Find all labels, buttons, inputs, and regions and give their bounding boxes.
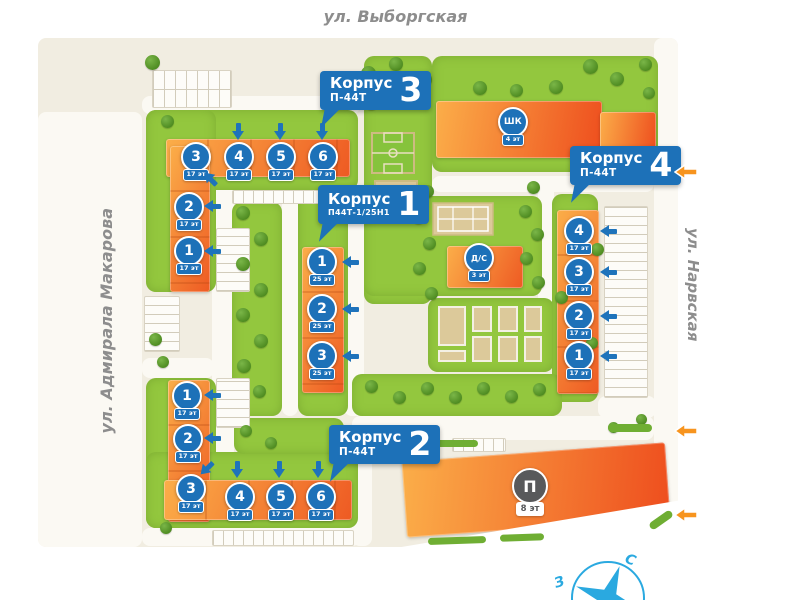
utility-courts [438,304,542,366]
tree [157,356,169,368]
tree [519,205,532,218]
tree [643,87,655,99]
badge-korpus4-4[interactable]: 417 эт [556,216,602,255]
badge-number: 3 [564,257,594,287]
tree [236,206,250,220]
entrance-arrow [204,245,222,257]
badge-number: 4 [224,142,254,172]
badge-floors: 17 эт [566,284,593,296]
badge-floors: 17 эт [310,169,337,181]
callout-korpus-3[interactable]: КорпусП-44Т3 [320,71,431,110]
entrance-arrow [204,389,222,401]
badge-number: 2 [174,192,204,222]
entrance-arrow [231,460,243,478]
parking-area [212,530,354,546]
callout-subtitle: П-44Т [330,92,392,104]
callout-number: 4 [649,150,672,180]
entrance-arrow [342,350,360,362]
badge-floors: 25 эт [309,368,336,380]
callout-title: Корпус [339,429,401,446]
badge-number: 3 [181,142,211,172]
badge-floors: 17 эт [226,169,253,181]
badge-label: Д/С [464,243,494,273]
tree [393,391,406,404]
tree [549,80,563,94]
access-arrow [674,507,698,527]
tree [532,276,545,289]
tree [236,308,250,322]
entrance-arrow [600,310,618,322]
badge-number: 4 [564,216,594,246]
tree [449,391,462,404]
badge-floors: 4 эт [502,134,524,146]
compass-rose: С З [548,546,668,600]
road [142,358,214,378]
callout-title: Корпус [328,191,390,208]
access-arrow [674,164,698,184]
badge-floors: 17 эт [566,328,593,340]
lawn [234,418,344,454]
badge-floors: 8 эт [516,502,545,516]
badge-korpus2-6[interactable]: 617 эт [298,482,344,521]
court-cell [472,306,492,332]
entrance-arrow [342,256,360,268]
tree [254,334,268,348]
tree [237,359,251,373]
entrance-arrow [600,350,618,362]
callout-title: Корпус [580,150,642,167]
tree [639,58,652,71]
badge-number: 5 [266,482,296,512]
tree [423,237,436,250]
road [598,396,656,418]
court-cell [498,336,518,362]
tree [477,382,490,395]
badge-kindergarten[interactable]: Д/С3 эт [456,243,502,282]
badge-number: 5 [266,142,296,172]
parking-area [216,378,250,428]
tree [413,262,426,275]
compass-west-label: З [552,573,566,591]
road [282,192,298,416]
badge-floors: 17 эт [268,169,295,181]
badge-korpus1-3[interactable]: 325 эт [299,341,345,380]
tree [265,437,277,449]
tree [610,72,624,86]
callout-number: 1 [397,189,420,219]
callout-title: Корпус [330,75,392,92]
badge-number: 3 [176,474,206,504]
access-arrow [674,423,698,443]
site-plan: ул. Выборгская ул. Адмирала Макарова ул.… [0,0,800,600]
callout-korpus-4[interactable]: КорпусП-44Т4 [570,146,681,185]
basketball-court [371,132,415,174]
entrance-arrow [204,200,222,212]
tree [421,382,434,395]
building-school-wing[interactable] [600,112,656,150]
parking-grid [152,70,232,108]
tree [161,115,174,128]
tree [160,522,172,534]
badge-number: 6 [308,142,338,172]
tree [531,228,544,241]
badge-korpus2-3[interactable]: 317 эт [168,474,214,513]
badge-number: 1 [172,381,202,411]
badge-floors: 17 эт [268,509,295,521]
tree [533,383,546,396]
badge-label: ШК [498,107,528,137]
tree [149,333,162,346]
callout-number: 2 [408,429,431,459]
badge-number: 2 [173,424,203,454]
badge-floors: 25 эт [309,321,336,333]
tree [425,287,438,300]
court-cell [438,306,466,346]
badge-korpus3-6[interactable]: 617 эт [300,142,346,181]
badge-floors: 17 эт [174,408,201,420]
tree [365,380,378,393]
street-label-left: ул. Адмирала Макарова [97,208,116,433]
tree [236,257,250,271]
tree [254,232,268,246]
badge-floors: 17 эт [227,509,254,521]
badge-floors: 25 эт [309,274,336,286]
tree [583,59,598,74]
court-cell [524,306,542,332]
badge-number: 1 [174,236,204,266]
badge-floors: 17 эт [566,368,593,380]
badge-floors: 17 эт [178,501,205,513]
entrance-arrow [273,460,285,478]
badge-floors: 17 эт [566,243,593,255]
street-label-right: ул. Нарвская [684,228,702,341]
court-cell [472,336,492,362]
tree [240,425,252,437]
badge-floors: 17 эт [308,509,335,521]
entrance-arrow [600,266,618,278]
tennis-court [432,202,494,236]
court-cell [438,350,466,362]
entrance-arrow [274,122,286,140]
tree [253,385,266,398]
tree [505,390,518,403]
street-left-surface [38,112,142,547]
callout-korpus-1[interactable]: КорпусП44Т-1/25Н11 [318,185,429,224]
badge-korpus3-4[interactable]: 417 эт [216,142,262,181]
badge-label: П [512,468,548,504]
badge-korpus4-3[interactable]: 317 эт [556,257,602,296]
entrance-arrow [204,432,222,444]
callout-subtitle: П-44Т [580,167,642,179]
badge-number: 2 [564,301,594,331]
street-label-top: ул. Выборгская [278,7,513,26]
badge-korpus4-2[interactable]: 217 эт [556,301,602,340]
callout-korpus-2[interactable]: КорпусП-44Т2 [329,425,440,464]
tree [510,84,523,97]
badge-korpus3-5[interactable]: 517 эт [258,142,304,181]
badge-number: 4 [225,482,255,512]
callout-number: 3 [399,75,422,105]
badge-korpus2-4[interactable]: 417 эт [217,482,263,521]
hedge [608,424,652,432]
tree [389,57,403,71]
entrance-arrow [600,225,618,237]
court-cell [498,306,518,332]
badge-floors: 17 эт [176,263,203,275]
badge-number: 1 [564,341,594,371]
badge-floors: 17 эт [175,451,202,463]
tree [473,81,487,95]
badge-korpus4-1[interactable]: 117 эт [556,341,602,380]
tree [520,252,533,265]
badge-number: 1 [307,247,337,277]
entrance-arrow [232,122,244,140]
badge-number: 6 [306,482,336,512]
tree [636,414,647,425]
badge-number: 2 [307,294,337,324]
entrance-arrow [342,303,360,315]
badge-floors: 3 эт [468,270,490,282]
badge-korpus1-2[interactable]: 225 эт [299,294,345,333]
parking-area [144,296,180,352]
badge-number: 3 [307,341,337,371]
badge-floors: 17 эт [176,219,203,231]
badge-school[interactable]: ШК4 эт [490,107,536,146]
tree [527,181,540,194]
callout-subtitle: П-44Т [339,446,401,458]
badge-korpus1-1[interactable]: 125 эт [299,247,345,286]
court-cell [524,336,542,362]
entrance-arrow [312,460,324,478]
badge-parking-building[interactable]: П8 эт [507,468,553,516]
tree [254,283,268,297]
callout-subtitle: П44Т-1/25Н1 [328,208,390,217]
tree [145,55,160,70]
